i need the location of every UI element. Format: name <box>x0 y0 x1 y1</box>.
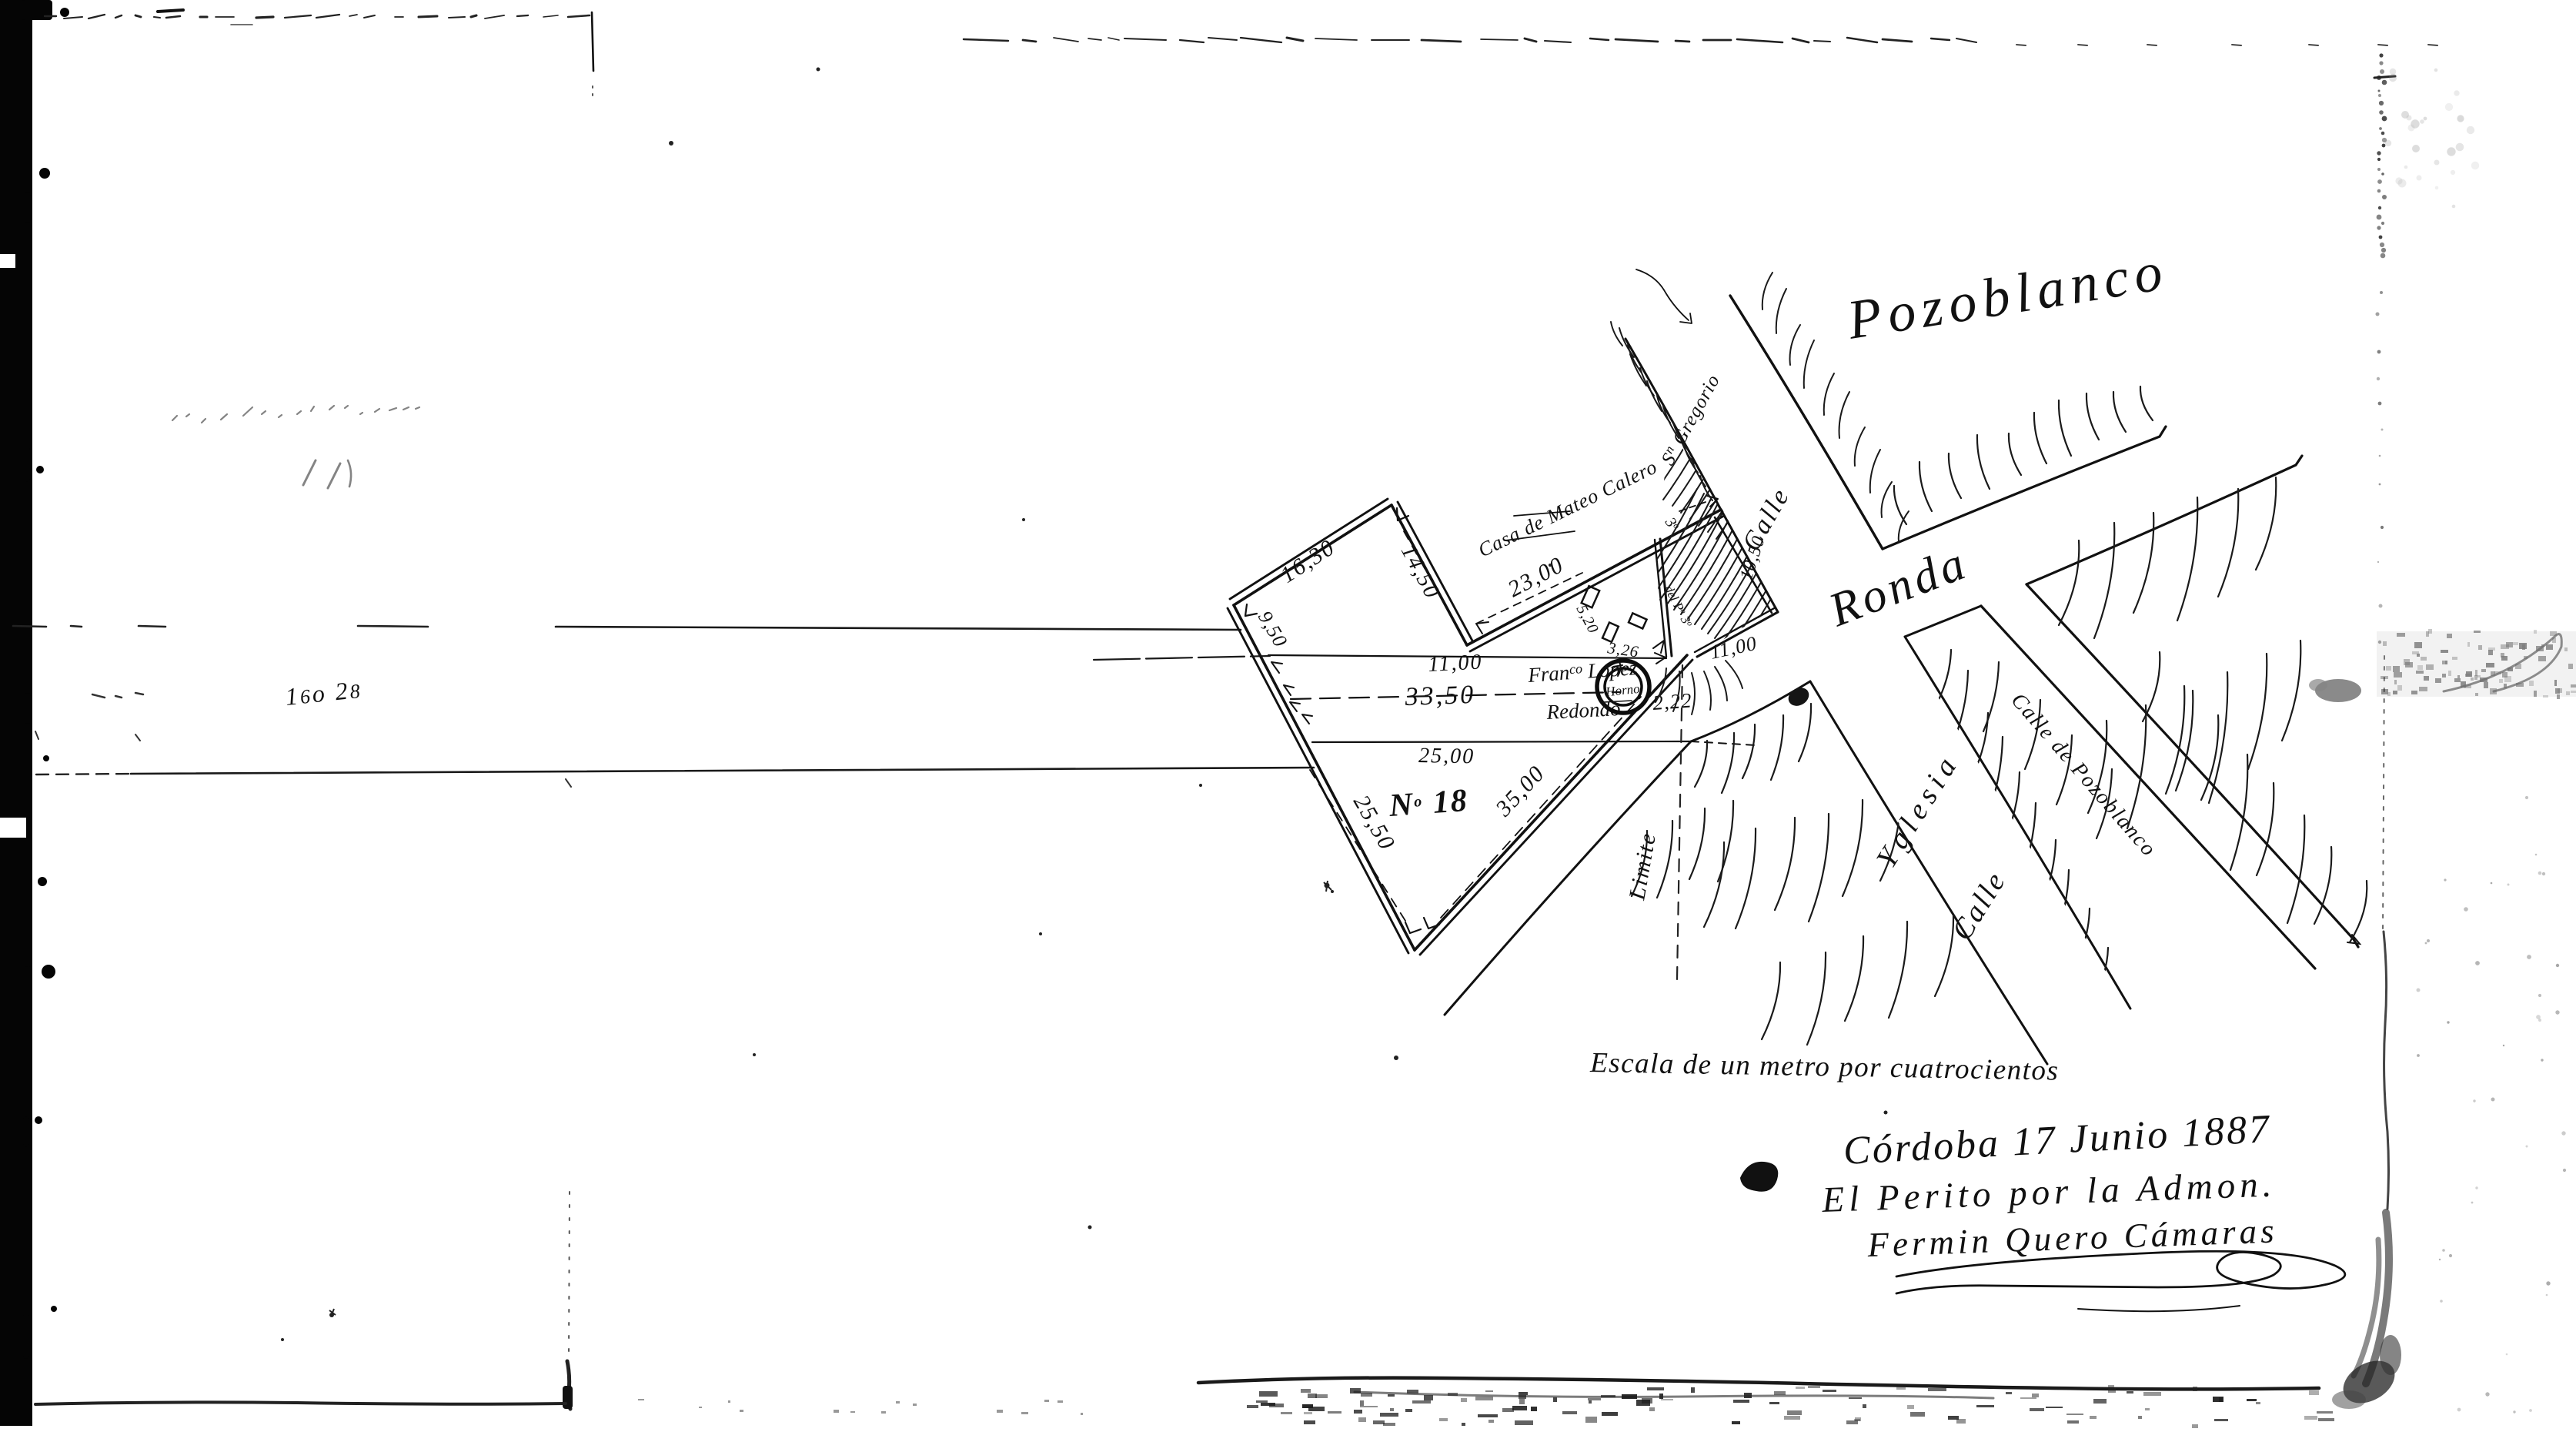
svg-text:2,22: 2,22 <box>1652 688 1692 714</box>
svg-text:25,00: 25,00 <box>1418 744 1475 768</box>
svg-text:No 18: No 18 <box>1387 783 1469 824</box>
svg-text:33,50: 33,50 <box>1404 681 1476 711</box>
svg-text:11,00: 11,00 <box>1428 650 1483 677</box>
